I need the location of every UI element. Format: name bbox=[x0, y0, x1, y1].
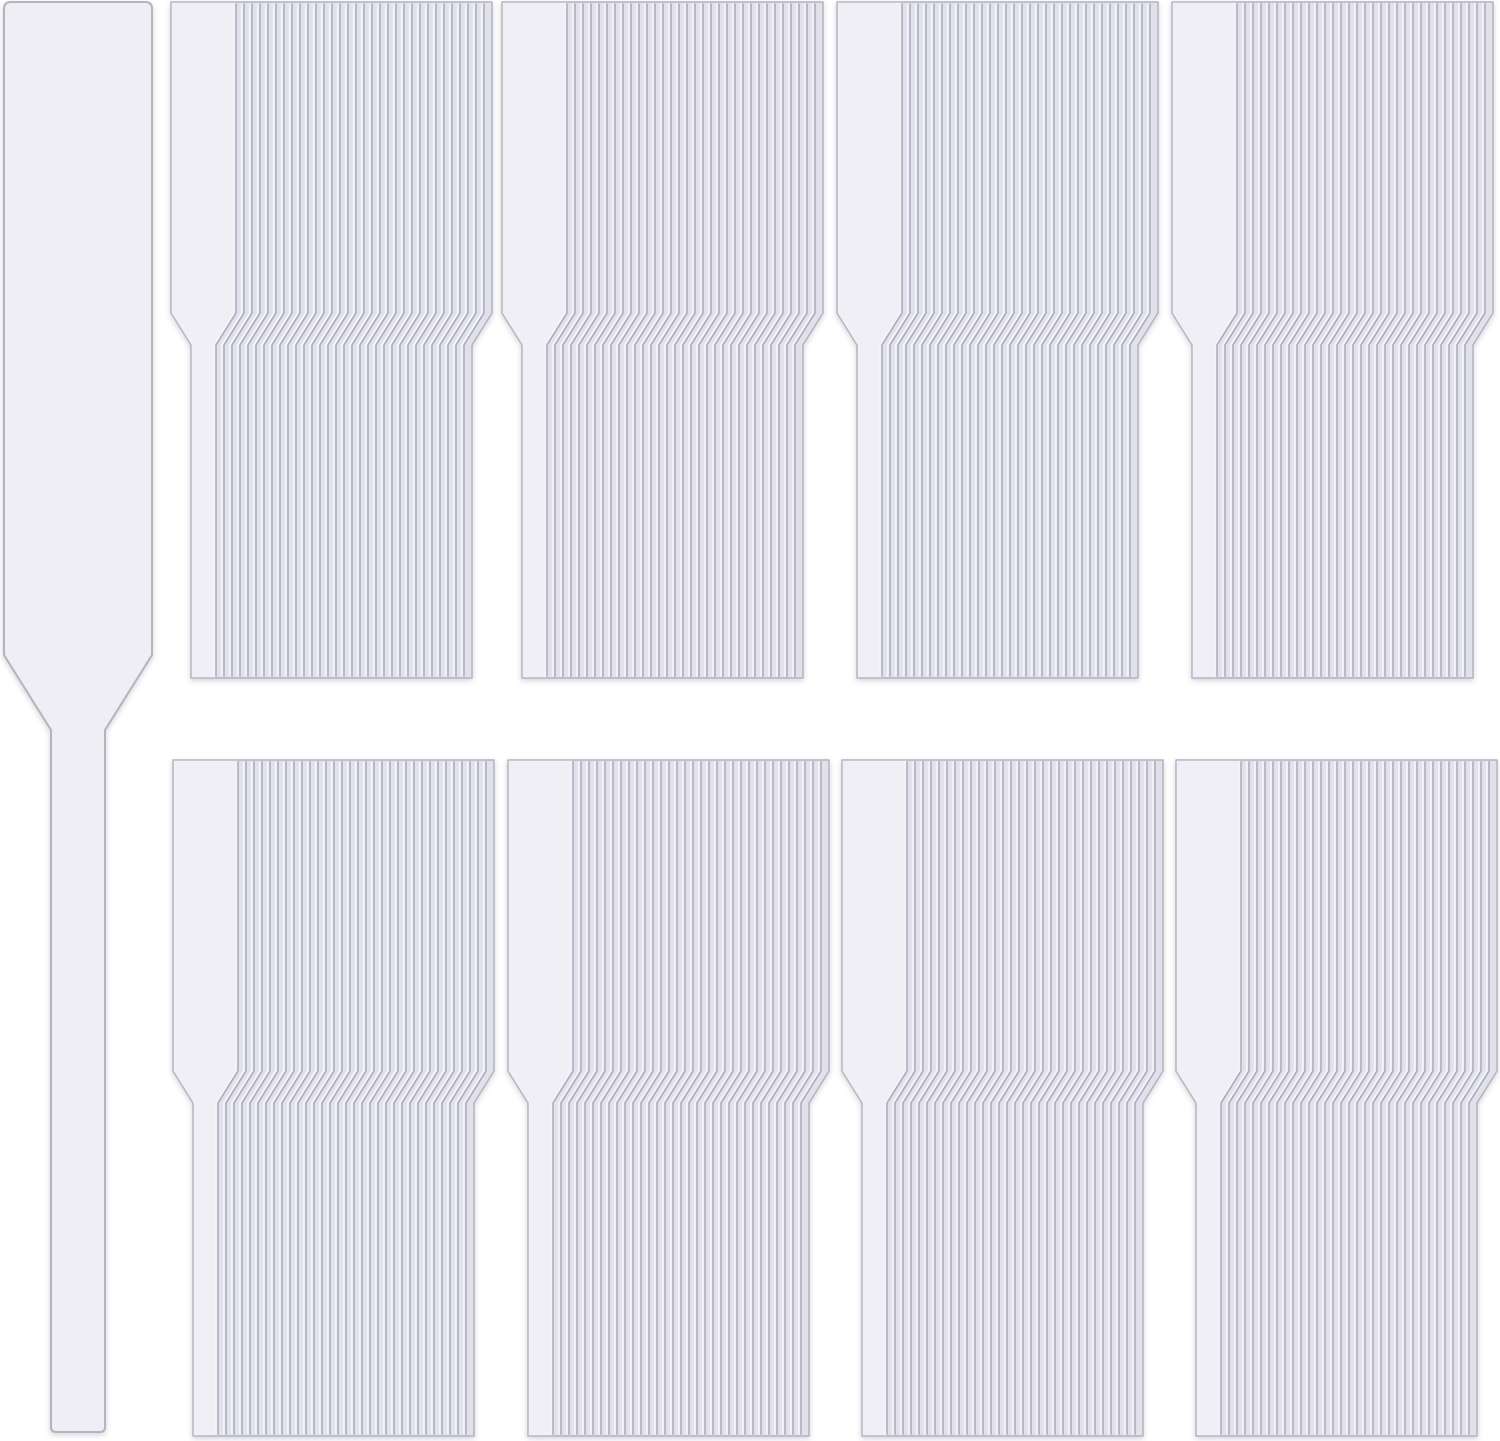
single-plant-label bbox=[4, 2, 152, 1432]
single-label-shape bbox=[4, 2, 152, 1432]
plant-label-stack bbox=[508, 760, 829, 1436]
plant-labels-illustration bbox=[0, 0, 1500, 1441]
plant-label-stack bbox=[842, 760, 1163, 1436]
plant-label-stack bbox=[1172, 2, 1493, 678]
plant-label-stack bbox=[171, 2, 492, 678]
product-photo bbox=[0, 0, 1500, 1441]
plant-label-stack bbox=[1176, 760, 1497, 1436]
plant-label-stack bbox=[837, 2, 1158, 678]
plant-label-stack bbox=[173, 760, 494, 1436]
plant-label-stack bbox=[502, 2, 823, 678]
